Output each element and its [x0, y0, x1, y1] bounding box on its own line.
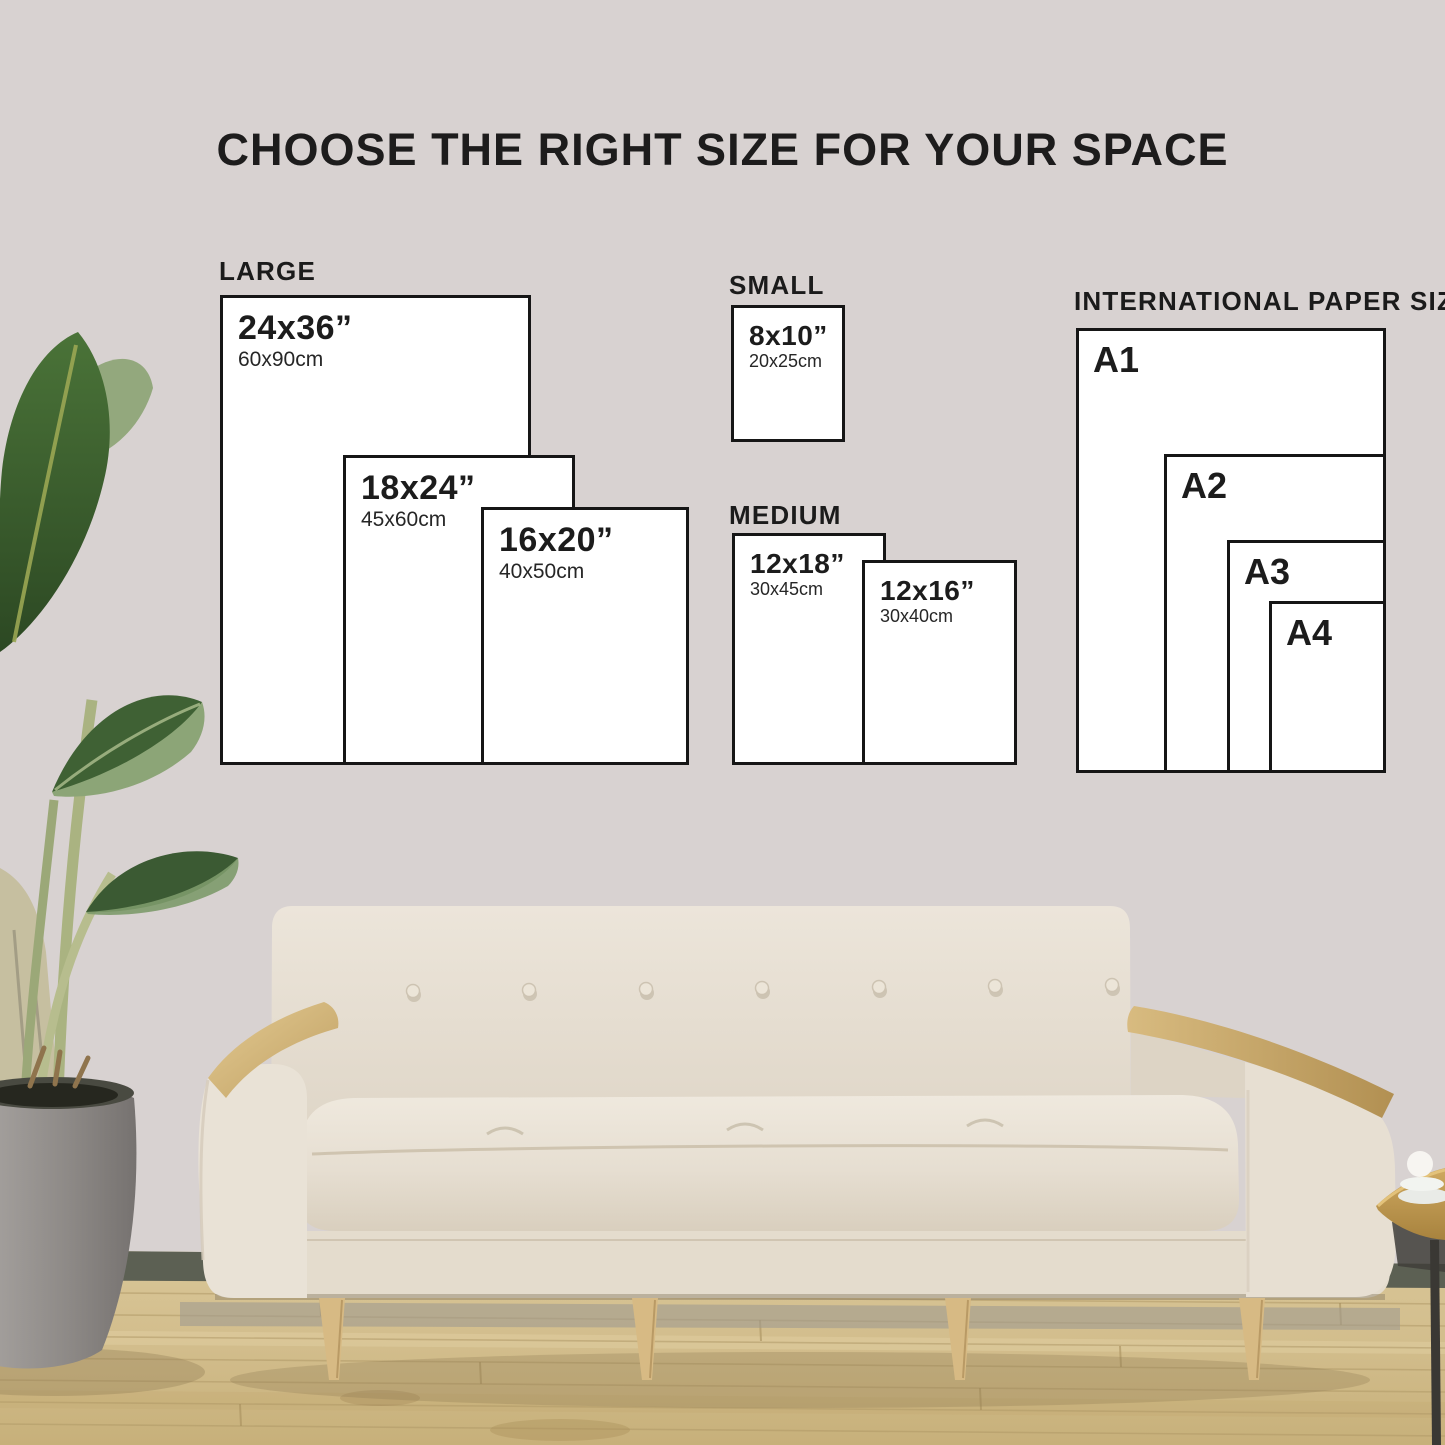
group-label-large: LARGE: [219, 256, 316, 287]
size-label-cm: 30x40cm: [880, 605, 1008, 628]
size-label-cm: 30x45cm: [750, 578, 877, 601]
size-label-cm: 40x50cm: [499, 559, 680, 585]
group-label-international: INTERNATIONAL PAPER SIZE: [1074, 286, 1445, 317]
size-box-16x20: 16x20” 40x50cm: [481, 507, 689, 765]
size-label-cm: 20x25cm: [749, 350, 836, 373]
size-label-inches: 12x16”: [880, 576, 1008, 605]
size-box-12x16: 12x16” 30x40cm: [862, 560, 1017, 765]
page-title: CHOOSE THE RIGHT SIZE FOR YOUR SPACE: [0, 124, 1445, 176]
size-label-a1: A1: [1093, 342, 1379, 378]
size-label-inches: 24x36”: [238, 311, 522, 347]
size-label-inches: 16x20”: [499, 523, 680, 559]
size-box-a4: A4: [1269, 601, 1386, 773]
size-label-inches: 12x18”: [750, 549, 877, 578]
size-label-a3: A3: [1244, 554, 1379, 590]
size-label-cm: 60x90cm: [238, 347, 522, 373]
size-guide-image: CHOOSE THE RIGHT SIZE FOR YOUR SPACE LAR…: [0, 0, 1445, 1445]
size-label-inches: 8x10”: [749, 321, 836, 350]
group-label-small: SMALL: [729, 270, 825, 301]
size-box-8x10: 8x10” 20x25cm: [731, 305, 845, 442]
size-label-a4: A4: [1286, 615, 1379, 651]
size-label-a2: A2: [1181, 468, 1379, 504]
group-label-medium: MEDIUM: [729, 500, 842, 531]
size-label-inches: 18x24”: [361, 471, 566, 507]
